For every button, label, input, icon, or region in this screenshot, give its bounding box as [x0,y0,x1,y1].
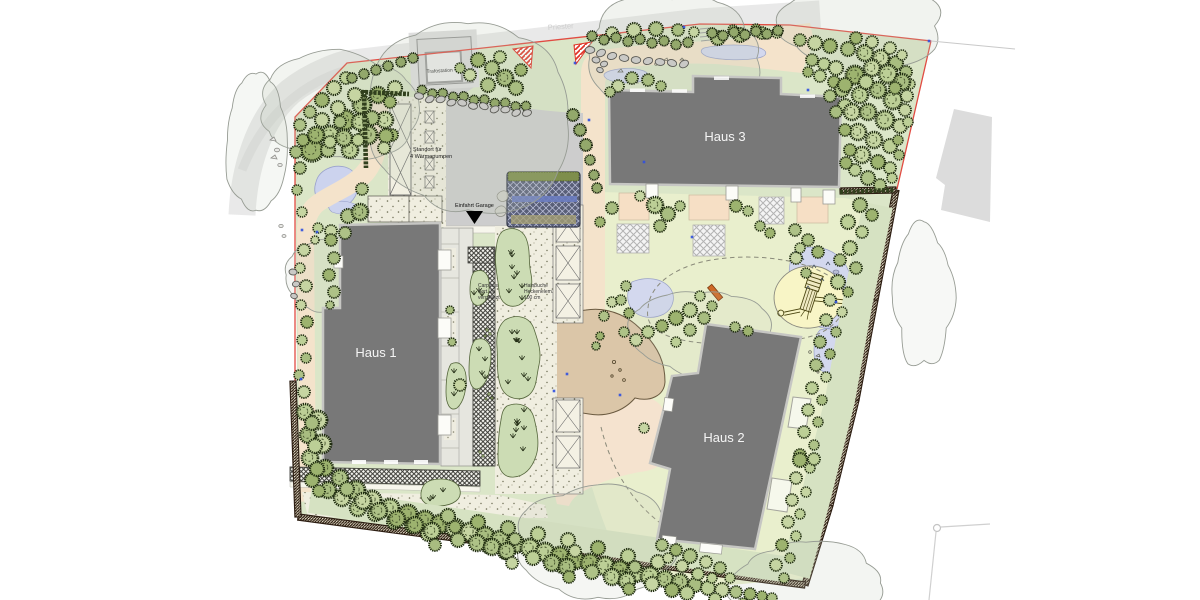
svg-text:100 cm: 100 cm [524,295,540,301]
svg-text:Standort für: Standort für [413,147,442,153]
svg-text:Haus 2: Haus 2 [703,430,744,445]
svg-text:Haus 1: Haus 1 [355,345,396,360]
svg-text:verpflanzt: verpflanzt [478,295,500,301]
svg-text:4 Wärmepumpen: 4 Wärmepumpen [410,154,452,160]
svg-text:Einfahrt Garage: Einfahrt Garage [455,203,494,209]
svg-text:Haus 3: Haus 3 [704,129,745,144]
svg-text:Priester: Priester [548,21,575,32]
